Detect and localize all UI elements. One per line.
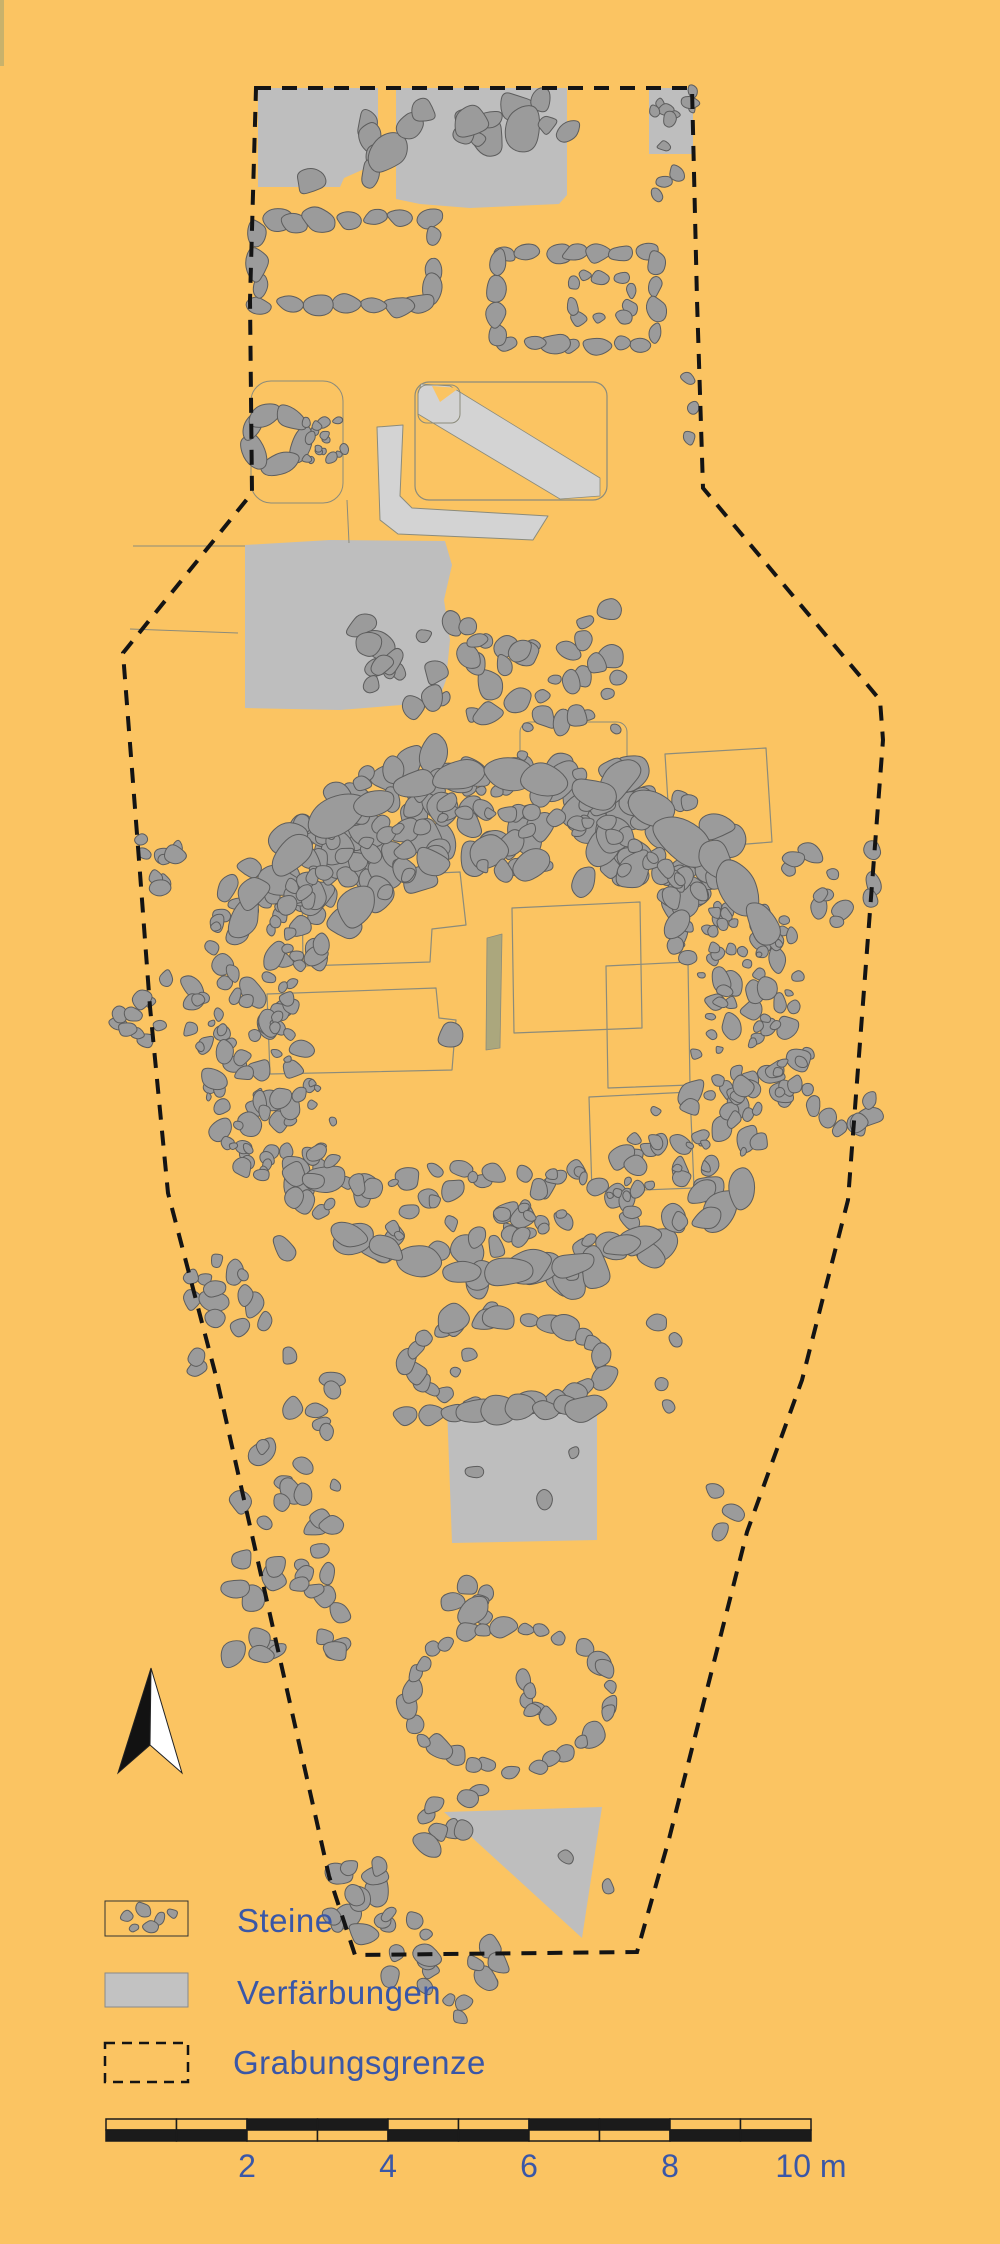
scalebar-label-2: 2: [238, 2150, 256, 2182]
legend-label-grabungsgrenze: Grabungsgrenze: [233, 2046, 486, 2079]
legend-label-steine: Steine: [237, 1904, 334, 1937]
excavation-plan-figure: Steine Verfärbungen Grabungsgrenze 2 4 6…: [0, 0, 1000, 2244]
legend-label-verfaerbungen: Verfärbungen: [237, 1976, 441, 2009]
scalebar-label-8: 8: [661, 2150, 679, 2182]
scalebar-label-6: 6: [520, 2150, 538, 2182]
scalebar-label-4: 4: [379, 2150, 397, 2182]
scalebar-label-10m: 10 m: [775, 2150, 846, 2182]
plan-svg: [0, 0, 1000, 2244]
